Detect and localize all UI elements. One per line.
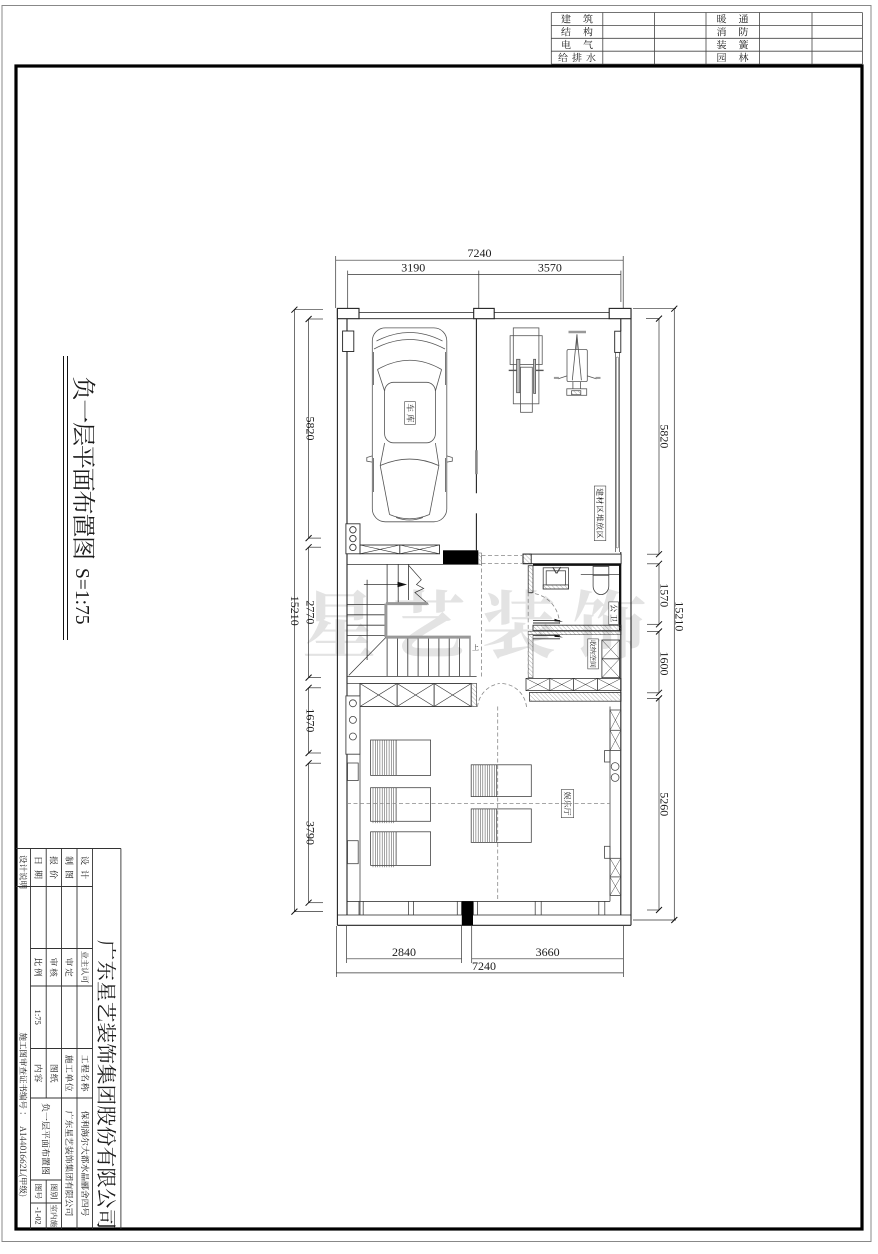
svg-text:3660: 3660 xyxy=(536,945,560,959)
svg-text:1:75: 1:75 xyxy=(33,1010,43,1025)
svg-text:5260: 5260 xyxy=(657,792,671,816)
svg-text:-1-02: -1-02 xyxy=(34,1207,43,1224)
svg-text:2840: 2840 xyxy=(392,945,416,959)
svg-text:7240: 7240 xyxy=(468,246,492,260)
svg-text:3570: 3570 xyxy=(538,261,562,275)
svg-text:3190: 3190 xyxy=(401,261,425,275)
svg-text:3790: 3790 xyxy=(304,821,318,845)
svg-text:1670: 1670 xyxy=(304,708,318,732)
svg-text:2770: 2770 xyxy=(304,600,318,624)
svg-text:1600: 1600 xyxy=(657,652,671,676)
svg-text:15210: 15210 xyxy=(673,601,687,631)
svg-text:S=1:75: S=1:75 xyxy=(71,568,92,625)
svg-text:15210: 15210 xyxy=(288,596,302,626)
svg-text:7240: 7240 xyxy=(472,959,496,973)
svg-text:1570: 1570 xyxy=(657,583,671,607)
svg-text:5820: 5820 xyxy=(657,424,671,448)
svg-text:5820: 5820 xyxy=(304,417,318,441)
